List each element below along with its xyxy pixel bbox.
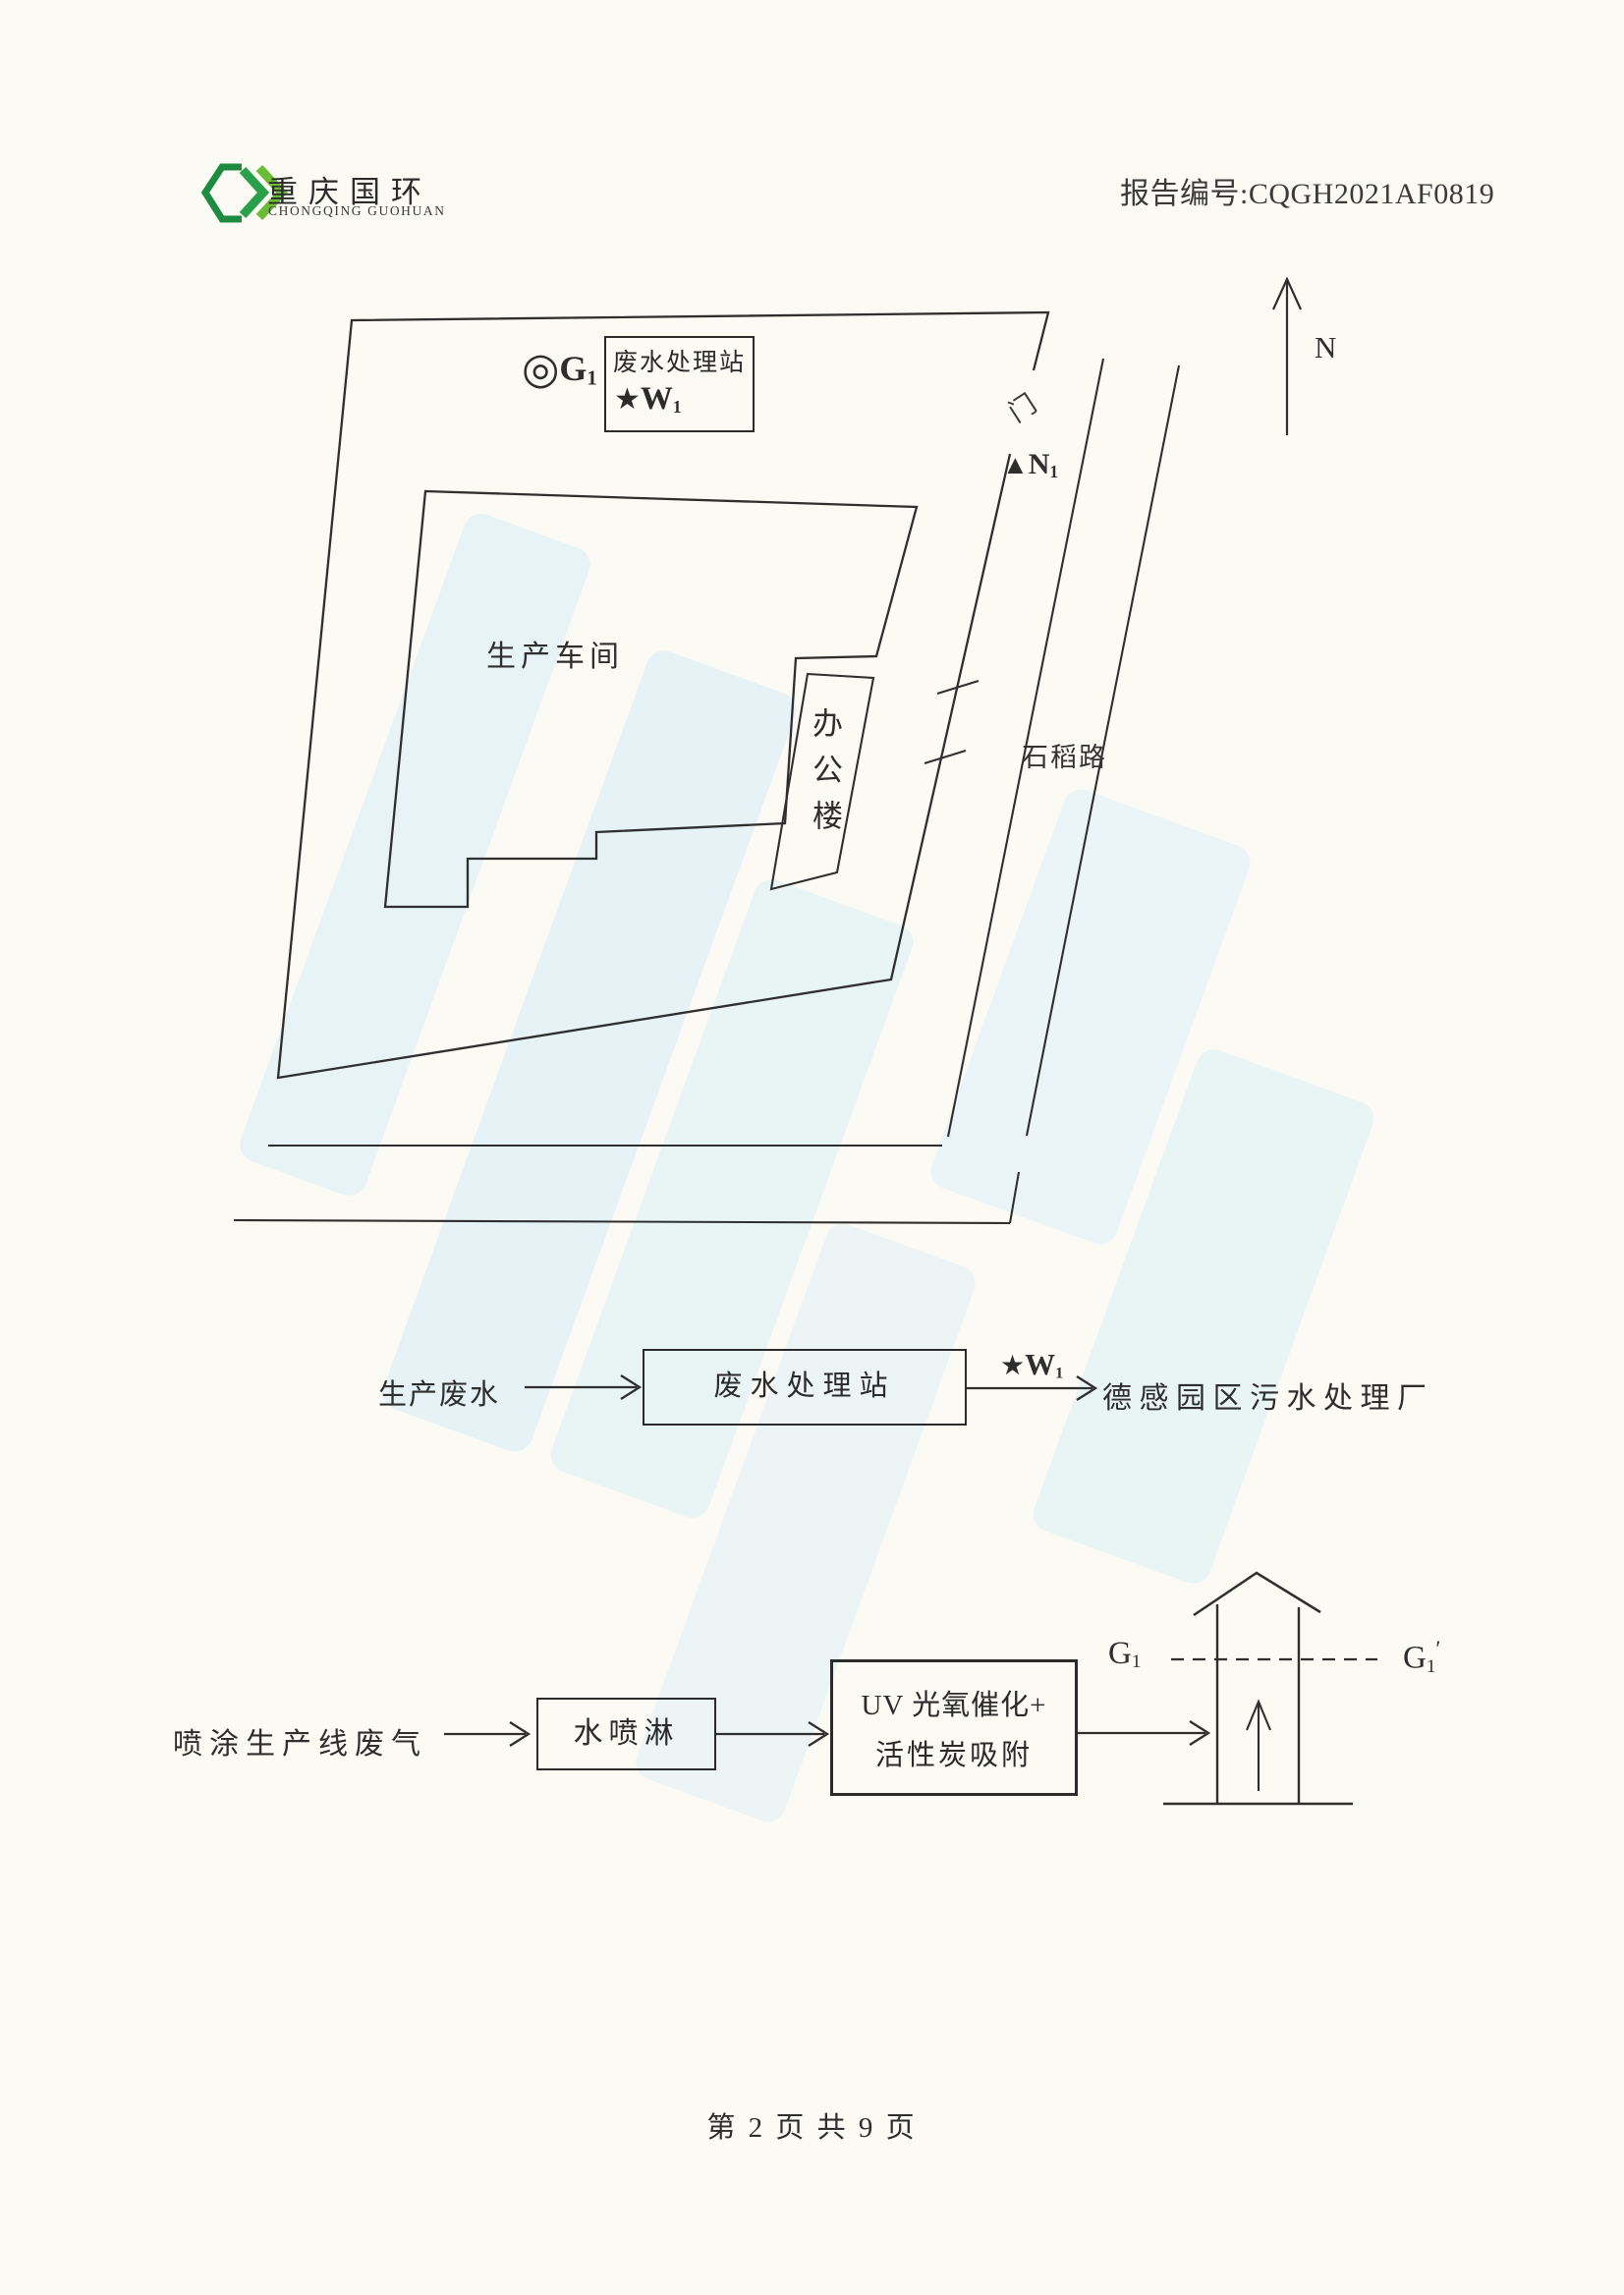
road-right-edge xyxy=(1010,365,1179,1223)
logo-english-name: CHONGQING GUOHUAN xyxy=(268,203,446,219)
wastewater-station-box: 废水处理站 ★W1 xyxy=(604,336,755,432)
site-plan-linework xyxy=(0,0,1624,2295)
flow2-source-label: 喷涂生产线废气 xyxy=(173,1719,427,1763)
g1-outlet-label: G1 xyxy=(1108,1636,1141,1673)
stack-roof xyxy=(1194,1573,1320,1615)
flow2-uv-box: UV 光氧催化+ 活性炭吸附 xyxy=(830,1659,1078,1796)
report-number: 报告编号:CQGH2021AF0819 xyxy=(1120,169,1494,212)
fence-ticks xyxy=(924,681,979,763)
report-page: 重庆国环 CHONGQING GUOHUAN 报告编号:CQGH2021AF08… xyxy=(0,0,1624,2295)
flow1-w1-marker: ★W1 xyxy=(1000,1347,1063,1383)
flow1-station-label: 废水处理站 xyxy=(644,1351,965,1423)
workshop-label: 生产车间 xyxy=(486,632,624,675)
star-icon: ★ xyxy=(1000,1351,1025,1381)
bullseye-icon: ◎ xyxy=(522,345,559,393)
flow1-station-box: 废水处理站 xyxy=(643,1349,967,1426)
page-footer: 第 2 页 共 9 页 xyxy=(0,2104,1624,2146)
flow2-uv-line1: UV 光氧催化+ xyxy=(833,1682,1075,1723)
flow1-destination-label: 德感园区污水处理厂 xyxy=(1102,1373,1434,1417)
triangle-icon: ▲ xyxy=(1002,450,1029,479)
g1-prime-outlet-label: G1′ xyxy=(1403,1636,1440,1678)
star-icon: ★ xyxy=(614,383,641,416)
flow2-spray-label: 水喷淋 xyxy=(538,1700,714,1767)
n1-marker: ▲N1 xyxy=(1002,448,1058,482)
wastewater-station-title: 废水处理站 xyxy=(606,343,753,378)
w1-marker: ★W1 xyxy=(606,381,753,418)
g1-marker: ◎G1 xyxy=(522,344,597,394)
bottom-road-edges xyxy=(234,1146,1010,1223)
north-label: N xyxy=(1315,330,1336,365)
flow2-spray-box: 水喷淋 xyxy=(536,1698,716,1770)
road-label: 石稻路 xyxy=(1022,736,1107,774)
flow1-source-label: 生产废水 xyxy=(378,1371,500,1413)
office-label: 办公楼 xyxy=(803,707,847,914)
flow2-uv-line2: 活性炭吸附 xyxy=(833,1732,1075,1773)
